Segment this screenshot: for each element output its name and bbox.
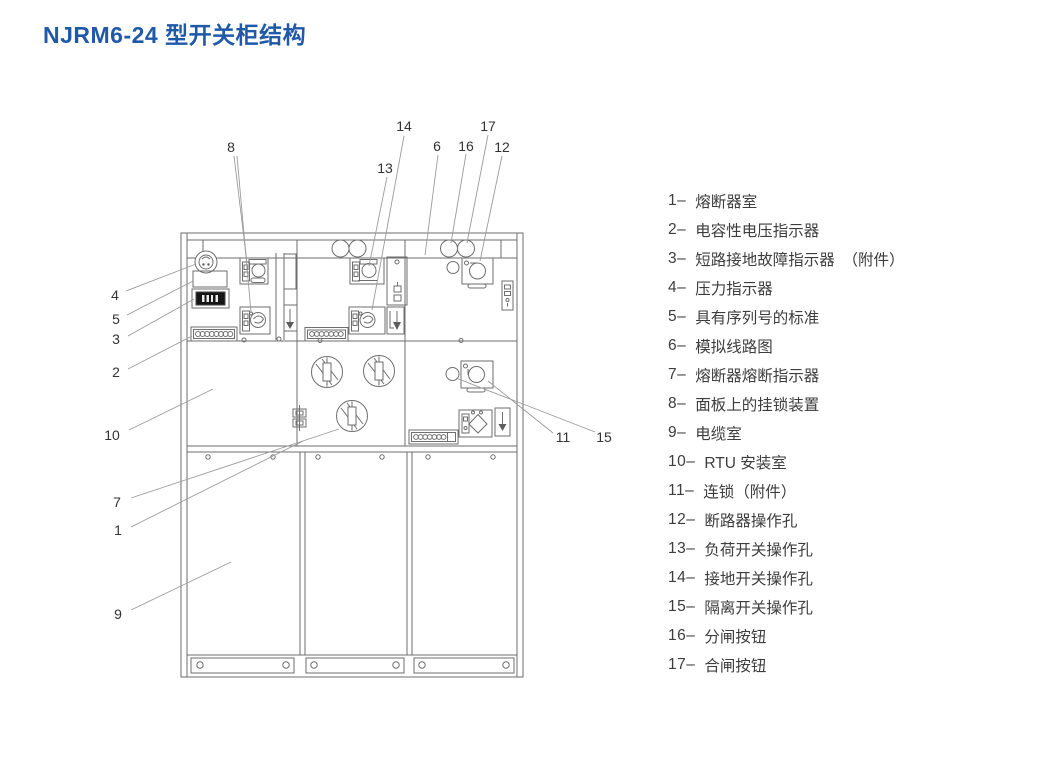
pressure-gauge	[195, 251, 217, 273]
interlock-operator	[446, 361, 493, 392]
legend-num: 3–	[668, 250, 686, 268]
legend-num: 14–	[668, 569, 695, 587]
arrow-channel-mid	[387, 307, 404, 334]
legend-text: 隔离开关操作孔	[704, 596, 813, 618]
callout-12: 12	[494, 139, 510, 155]
legend-text: 压力指示器	[695, 277, 773, 299]
legend-item-6: 6–模拟线路图	[668, 331, 905, 360]
legend-num: 9–	[668, 424, 686, 442]
callout-2: 2	[112, 364, 120, 380]
narrow-panel-mid	[387, 257, 407, 305]
callout-7: 7	[113, 494, 121, 510]
callout-6: 6	[433, 138, 441, 154]
legend-item-17: 17–合闸按钮	[668, 650, 905, 679]
legend-item-5: 5–具有序列号的标准	[668, 302, 905, 331]
legend-item-1: 1–熔断器室	[668, 186, 905, 215]
legend-item-2: 2–电容性电压指示器	[668, 215, 905, 244]
callout-4: 4	[111, 287, 119, 303]
legend-item-9: 9–电缆室	[668, 418, 905, 447]
page: NJRM6-24 型开关柜结构	[0, 0, 1064, 777]
callout-11: 11	[556, 429, 571, 445]
legend-text: RTU 安装室	[704, 451, 786, 473]
voltage-indicator-strip-mid	[305, 328, 348, 342]
fault-indicator-display	[192, 289, 229, 308]
legend-item-16: 16–分闸按钮	[668, 621, 905, 650]
legend-num: 1–	[668, 192, 686, 210]
voltage-indicator-strip-right	[409, 430, 458, 444]
legend-text: 连锁（附件）	[703, 480, 796, 502]
legend-item-7: 7–熔断器熔断指示器	[668, 360, 905, 389]
voltage-indicator-strip-left	[191, 327, 237, 341]
callout-leader-lines	[126, 135, 595, 610]
legend-num: 12–	[668, 511, 695, 529]
legend-item-12: 12–断路器操作孔	[668, 505, 905, 534]
callout-13: 13	[377, 160, 393, 176]
callout-10: 10	[104, 427, 120, 443]
legend-item-8: 8–面板上的挂锁装置	[668, 389, 905, 418]
legend-item-14: 14–接地开关操作孔	[668, 563, 905, 592]
callout-8: 8	[227, 139, 235, 155]
indicator-strip-right	[502, 281, 513, 310]
serial-nameplate	[193, 271, 227, 287]
callout-9: 9	[114, 606, 122, 622]
legend-text: 分闸按钮	[704, 625, 766, 647]
legend-item-13: 13–负荷开关操作孔	[668, 534, 905, 563]
cabinet-frame	[181, 233, 523, 677]
legend-num: 16–	[668, 627, 695, 645]
legend-num: 11–	[668, 482, 694, 500]
pushbutton-circles	[332, 240, 475, 257]
padlock-operator-left-lower	[240, 307, 281, 342]
legend-text: 具有序列号的标准	[695, 306, 819, 328]
arrow-channel-left	[284, 305, 297, 331]
legend-item-15: 15–隔离开关操作孔	[668, 592, 905, 621]
legend-item-4: 4–压力指示器	[668, 273, 905, 302]
legend-text: 短路接地故障指示器 （附件）	[695, 248, 904, 270]
legend-num: 8–	[668, 395, 686, 413]
legend-num: 4–	[668, 279, 686, 297]
legend-text: 合闸按钮	[704, 654, 766, 676]
legend-num: 17–	[668, 656, 695, 674]
legend-item-11: 11–连锁（附件）	[668, 476, 905, 505]
callout-5: 5	[112, 311, 120, 327]
legend-text: 熔断器室	[695, 190, 757, 212]
frame-strut-left	[276, 253, 296, 340]
callout-3: 3	[112, 331, 120, 347]
legend-num: 13–	[668, 540, 695, 558]
divider-connector	[293, 405, 306, 431]
callout-1: 1	[114, 522, 122, 538]
fuse-indicators	[312, 356, 395, 432]
padlock-operator-left-upper	[240, 258, 268, 284]
earthing-switch-operator	[349, 307, 385, 334]
legend-text: 接地开关操作孔	[704, 567, 813, 589]
legend-text: 面板上的挂锁装置	[695, 393, 819, 415]
legend-text: 模拟线路图	[695, 335, 773, 357]
isolator-operator	[459, 410, 492, 437]
legend-num: 2–	[668, 221, 686, 239]
legend-text: 电缆室	[695, 422, 742, 444]
legend-text: 电容性电压指示器	[695, 219, 819, 241]
legend-text: 熔断器熔断指示器	[695, 364, 819, 386]
callout-14: 14	[396, 118, 412, 134]
legend-text: 断路器操作孔	[704, 509, 797, 531]
legend-num: 7–	[668, 366, 686, 384]
legend-num: 10–	[668, 453, 695, 471]
legend-num: 6–	[668, 337, 686, 355]
callout-17: 17	[480, 118, 496, 134]
legend-num: 5–	[668, 308, 686, 326]
legend-item-10: 10–RTU 安装室	[668, 447, 905, 476]
callout-16: 16	[458, 138, 474, 154]
legend-num: 15–	[668, 598, 695, 616]
callout-15: 15	[596, 429, 612, 445]
breaker-operator	[447, 258, 493, 288]
arrow-channel-right	[495, 408, 510, 436]
legend-item-3: 3–短路接地故障指示器 （附件）	[668, 244, 905, 273]
legend-text: 负荷开关操作孔	[704, 538, 813, 560]
legend: 1–熔断器室 2–电容性电压指示器 3–短路接地故障指示器 （附件） 4–压力指…	[668, 186, 905, 679]
